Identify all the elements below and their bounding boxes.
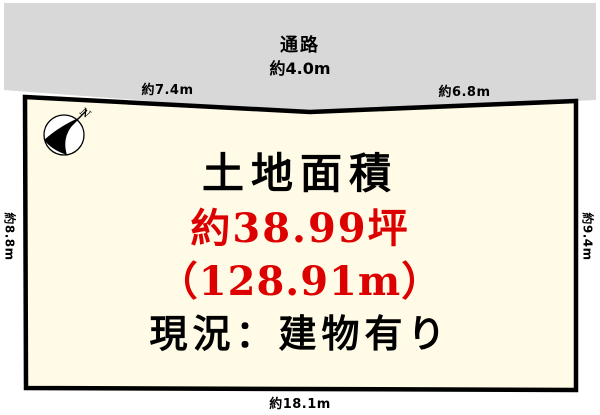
land-plot-diagram: N 通路 約4.0m 約7.4m 約6.8m 約8.8m 約9.4m 約18.1… [0,0,600,415]
plot-area-title: 土地面積 [0,140,600,201]
dimension-top-right: 約6.8m [417,81,512,100]
road-width-label: 約4.0m [0,55,600,79]
plot-area-tsubo: 約38.99坪 [0,196,600,254]
dimension-top-left: 約7.4m [120,79,215,98]
plot-area-sqm: （128.91m） [0,249,600,307]
road-name-label: 通路 [0,31,600,57]
plot-status-label: 現況：建物有り [0,303,600,358]
dimension-bottom: 約18.1m [0,393,600,412]
